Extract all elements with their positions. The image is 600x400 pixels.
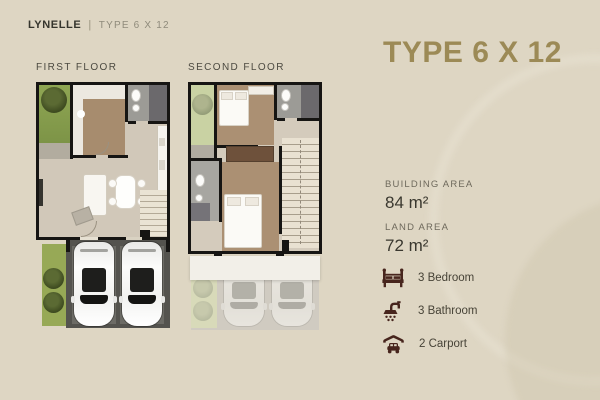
car-roof: [130, 268, 154, 292]
carport-roof: [190, 256, 320, 280]
stove: [159, 160, 165, 170]
kitchen-sink: [159, 138, 165, 146]
feature-label: 3 Bedroom: [418, 272, 474, 284]
carport-icon: [381, 332, 406, 356]
bush: [43, 268, 64, 289]
feature-label: 2 Carport: [419, 338, 467, 350]
toilet: [195, 174, 205, 187]
gravel-patch: [39, 143, 70, 159]
brand-name: LYNELLE: [28, 19, 81, 31]
wall: [279, 146, 282, 234]
brand-type-label: TYPE 6 X 12: [99, 20, 170, 31]
building-area-label: BUILDING AREA: [385, 179, 585, 190]
shower-area: [149, 85, 167, 121]
car-trunk: [80, 249, 108, 252]
car-trunk: [128, 249, 156, 252]
land-area-label: LAND AREA: [385, 222, 585, 233]
chair: [108, 179, 117, 188]
wall: [277, 118, 285, 121]
pillow: [221, 92, 233, 100]
side-table: [77, 110, 85, 118]
stairs-direction-line: [300, 140, 301, 244]
shower-area: [191, 203, 210, 221]
bed-icon: [381, 267, 405, 289]
first-floor-section: FIRST FLOOR: [36, 62, 170, 73]
car-mirror: [119, 296, 123, 303]
bush: [43, 292, 64, 313]
wall: [108, 155, 128, 158]
car-windshield: [128, 295, 156, 304]
toilet: [281, 89, 291, 102]
car-mirror: [161, 296, 165, 303]
feature-label: 3 Bathroom: [418, 305, 477, 317]
first-floor-plan: [36, 82, 170, 334]
car: [74, 242, 114, 326]
wardrobe: [248, 86, 274, 95]
chair: [108, 197, 117, 206]
car-roof: [82, 268, 106, 292]
pillow: [245, 197, 259, 206]
wall: [128, 121, 136, 124]
sink: [195, 194, 203, 202]
shower-icon: [381, 299, 405, 323]
wardrobe: [226, 146, 274, 162]
second-floor-label: SECOND FLOOR: [188, 62, 322, 73]
car: [122, 242, 162, 326]
wall: [73, 155, 96, 158]
car-mirror: [113, 296, 117, 303]
wall: [66, 240, 70, 252]
brochure-page: LYNELLE | TYPE 6 X 12 FIRST FLOOR: [0, 0, 600, 400]
car-mirror: [71, 296, 75, 303]
feature-carport: 2 Carport: [381, 332, 467, 356]
breadcrumb: LYNELLE | TYPE 6 X 12: [28, 19, 170, 31]
building-area-value: 84 m²: [385, 193, 585, 213]
chair: [137, 179, 146, 188]
wall: [140, 230, 150, 237]
sink: [132, 104, 140, 112]
wall: [282, 240, 289, 251]
toilet: [131, 89, 141, 102]
feature-bathroom: 3 Bathroom: [381, 299, 477, 323]
gravel-patch: [191, 145, 215, 158]
tv-console: [39, 179, 43, 206]
pillow: [227, 197, 241, 206]
shower-area: [301, 85, 319, 118]
first-floor-label: FIRST FLOOR: [36, 62, 170, 73]
wall: [148, 121, 167, 124]
dining-table: [115, 175, 136, 209]
brand-divider: |: [88, 19, 91, 31]
feature-bedroom: 3 Bedroom: [381, 267, 474, 289]
tree: [41, 87, 67, 113]
wall: [166, 240, 170, 252]
car-windshield: [80, 295, 108, 304]
second-floor-section: SECOND FLOOR: [188, 62, 322, 73]
sink: [281, 103, 289, 111]
second-floor-plan: [188, 82, 322, 334]
pillow: [235, 92, 247, 100]
tree: [192, 94, 213, 115]
wall: [297, 118, 319, 121]
land-area-spec: LAND AREA 72 m²: [385, 222, 585, 256]
page-title: TYPE 6 X 12: [383, 36, 562, 70]
land-area-value: 72 m²: [385, 236, 585, 256]
building-area-spec: BUILDING AREA 84 m²: [385, 179, 585, 213]
